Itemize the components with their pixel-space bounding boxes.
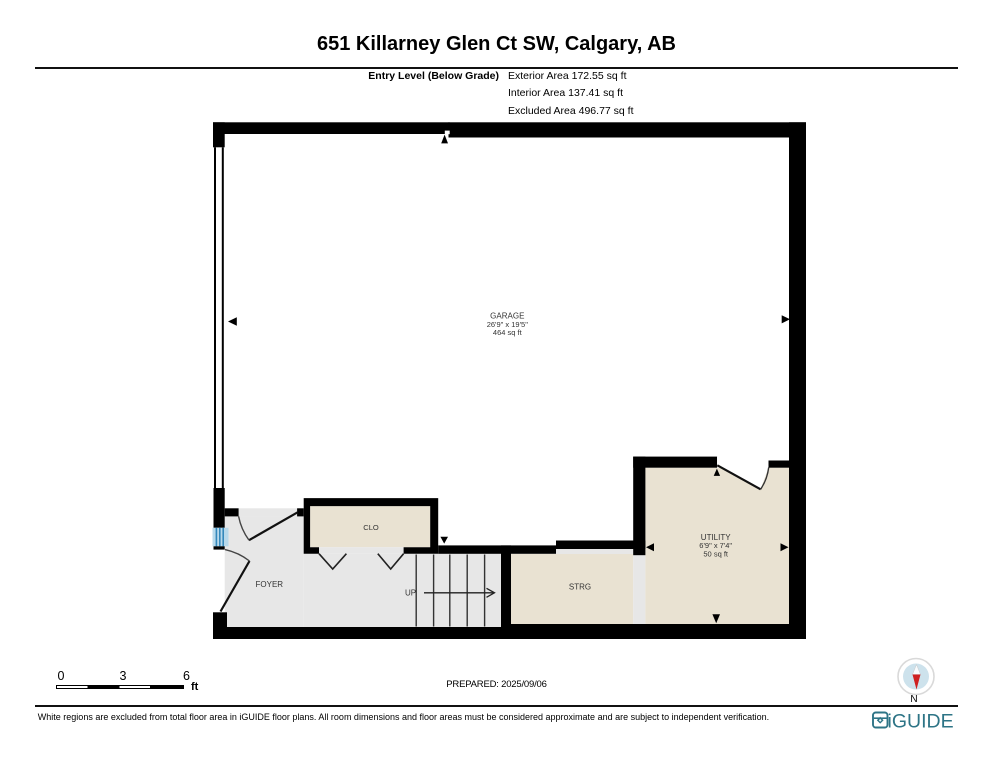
svg-text:UP: UP xyxy=(405,589,416,598)
svg-text:464 sq ft: 464 sq ft xyxy=(493,328,523,337)
svg-text:FOYER: FOYER xyxy=(256,580,284,589)
svg-text:iGUIDE: iGUIDE xyxy=(888,711,954,733)
svg-text:50 sq ft: 50 sq ft xyxy=(703,549,729,558)
svg-text:STRG: STRG xyxy=(569,583,591,592)
svg-text:CLO: CLO xyxy=(363,523,379,532)
